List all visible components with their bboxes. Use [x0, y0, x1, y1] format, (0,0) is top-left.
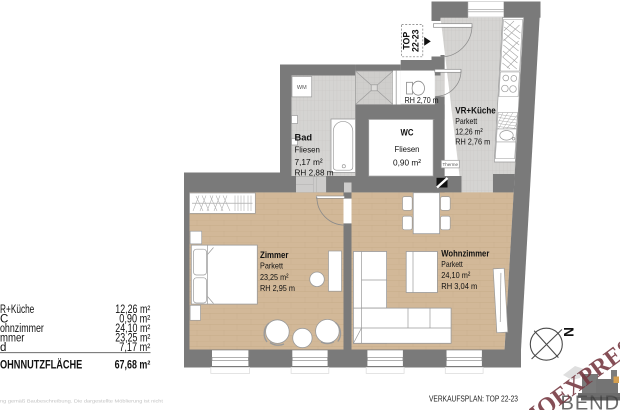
- svg-text:N: N: [561, 327, 576, 337]
- svg-text:Therme: Therme: [443, 162, 459, 167]
- svg-text:Parkett: Parkett: [455, 116, 478, 126]
- svg-text:Fliesen: Fliesen: [395, 144, 420, 154]
- svg-text:7,17 m²: 7,17 m²: [295, 157, 323, 167]
- svg-text:WC: WC: [401, 128, 414, 139]
- svg-text:Zimmer: Zimmer: [260, 250, 289, 261]
- svg-text:OHNNUTZFLÄCHE: OHNNUTZFLÄCHE: [0, 358, 83, 371]
- svg-text:RH 2,88 m: RH 2,88 m: [295, 168, 334, 178]
- svg-text:RH 2,70 m: RH 2,70 m: [405, 95, 439, 105]
- svg-text:Bad: Bad: [295, 133, 313, 144]
- svg-text:12,26 m²: 12,26 m²: [455, 127, 483, 137]
- svg-text:Wohnzimmer: Wohnzimmer: [441, 248, 489, 259]
- svg-text:RH 3,04 m: RH 3,04 m: [441, 281, 477, 291]
- svg-text:Parkett: Parkett: [441, 259, 463, 269]
- svg-text:RH 2,95 m: RH 2,95 m: [260, 283, 295, 293]
- svg-text:22-23: 22-23: [411, 29, 421, 52]
- svg-text:WM: WM: [297, 85, 307, 91]
- svg-text:24,10 m²: 24,10 m²: [441, 270, 470, 280]
- svg-text:RH 2,76 m: RH 2,76 m: [455, 136, 490, 146]
- svg-text:67,68 m²: 67,68 m²: [115, 359, 151, 371]
- svg-text:0,90 m²: 0,90 m²: [393, 158, 421, 168]
- svg-text:Parkett: Parkett: [260, 260, 284, 270]
- svg-text:ng gemäß Baubeschreibung. Die: ng gemäß Baubeschreibung. Die dargestell…: [0, 399, 164, 404]
- svg-text:23,25 m²: 23,25 m²: [260, 272, 289, 282]
- svg-text:VERKAUFSPLAN: TOP 22-23: VERKAUFSPLAN: TOP 22-23: [429, 393, 518, 403]
- svg-text:Fliesen: Fliesen: [295, 145, 321, 155]
